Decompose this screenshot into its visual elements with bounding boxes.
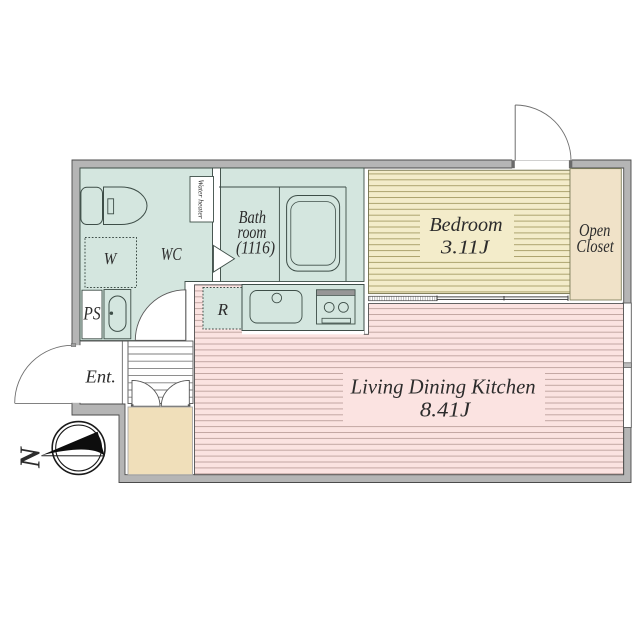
svg-text:W: W: [104, 249, 119, 268]
svg-text:Ent.: Ent.: [84, 367, 115, 387]
svg-text:N: N: [15, 446, 47, 469]
svg-text:Water heater: Water heater: [197, 180, 206, 219]
svg-text:WC: WC: [161, 244, 182, 264]
svg-text:Closet: Closet: [576, 236, 614, 256]
svg-text:Bedroom: Bedroom: [429, 215, 502, 236]
svg-text:8.41J: 8.41J: [420, 398, 472, 422]
svg-text:(1116): (1116): [236, 237, 275, 257]
svg-text:PS: PS: [83, 305, 101, 325]
svg-text:R: R: [217, 300, 229, 319]
svg-text:Living Dining Kitchen: Living Dining Kitchen: [350, 374, 536, 398]
svg-text:3.11J: 3.11J: [440, 237, 491, 258]
